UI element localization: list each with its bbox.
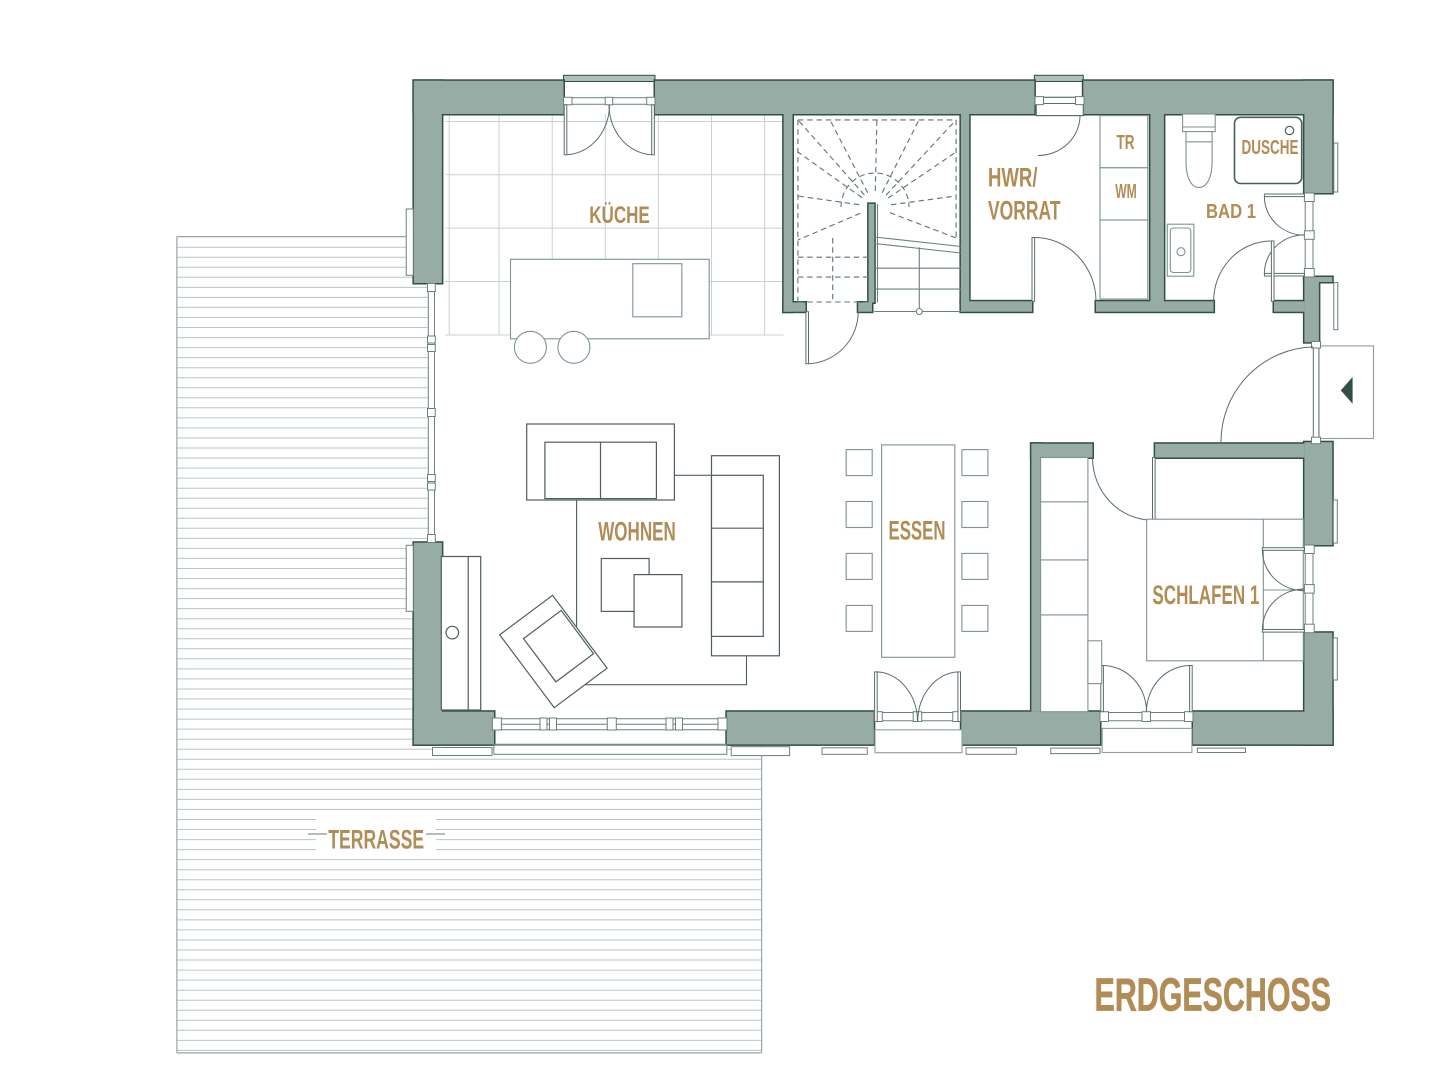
- svg-text:KÜCHE: KÜCHE: [589, 202, 650, 229]
- svg-text:TERRASSE: TERRASSE: [328, 825, 424, 855]
- svg-text:WOHNEN: WOHNEN: [598, 517, 676, 547]
- svg-text:HWR/: HWR/: [988, 163, 1038, 193]
- svg-text:SCHLAFEN 1: SCHLAFEN 1: [1152, 580, 1259, 610]
- svg-text:ESSEN: ESSEN: [889, 516, 946, 546]
- svg-text:TR: TR: [1117, 132, 1135, 154]
- svg-text:ERDGESCHOSS: ERDGESCHOSS: [1095, 969, 1332, 1021]
- svg-text:WM: WM: [1115, 181, 1137, 203]
- svg-text:DUSCHE: DUSCHE: [1242, 137, 1299, 159]
- svg-text:BAD 1: BAD 1: [1206, 201, 1256, 223]
- svg-text:VORRAT: VORRAT: [988, 196, 1061, 226]
